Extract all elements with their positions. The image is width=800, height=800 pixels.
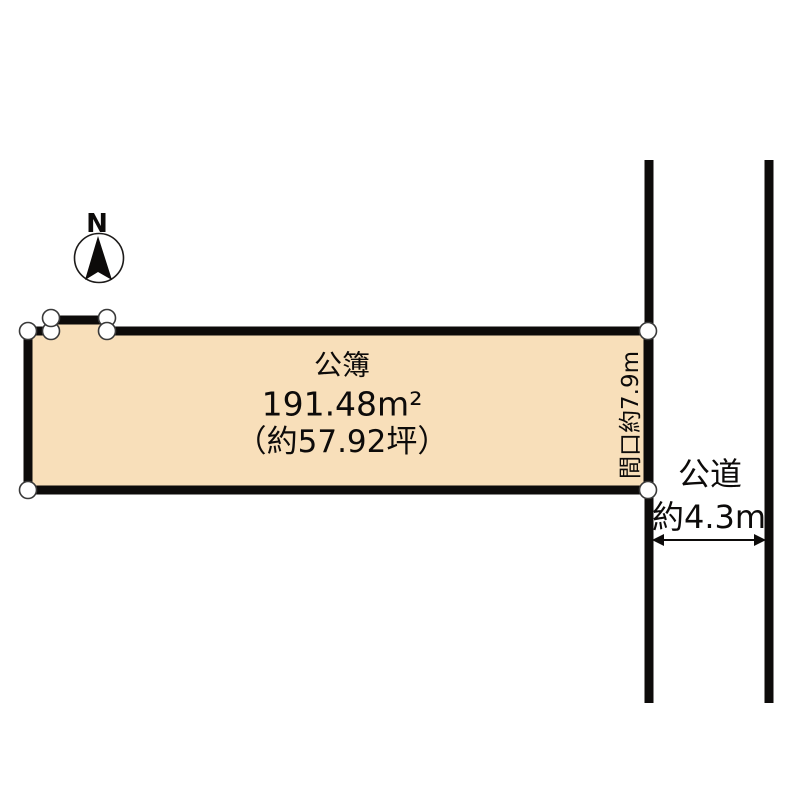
road-labels: 公道 約4.3m (652, 455, 766, 536)
road-width-label: 約4.3m (652, 498, 766, 536)
compass: N (75, 209, 124, 283)
boundary-point-top-right (640, 323, 657, 340)
parcel-area-tsubo-label: （約57.92坪） (236, 424, 449, 460)
parcel-area-label: 191.48m² (262, 385, 423, 424)
boundary-point-step2-lower (99, 323, 116, 340)
boundary-point-step1-upper (43, 310, 60, 327)
boundary-point-bottom-left (20, 482, 37, 499)
frontage-label: 間口約7.9m (618, 351, 644, 479)
diagram-canvas: N 公簿 191.48m² （約57.92坪） 間口約7.9m 公道 約4.3m (0, 0, 800, 800)
boundary-point-top-left (20, 323, 37, 340)
land-plot-diagram: N 公簿 191.48m² （約57.92坪） 間口約7.9m 公道 約4.3m (0, 0, 800, 800)
parcel-registry-label: 公簿 (314, 349, 370, 382)
boundary-point-bottom-right (640, 482, 657, 499)
road-name-label: 公道 (678, 455, 742, 493)
